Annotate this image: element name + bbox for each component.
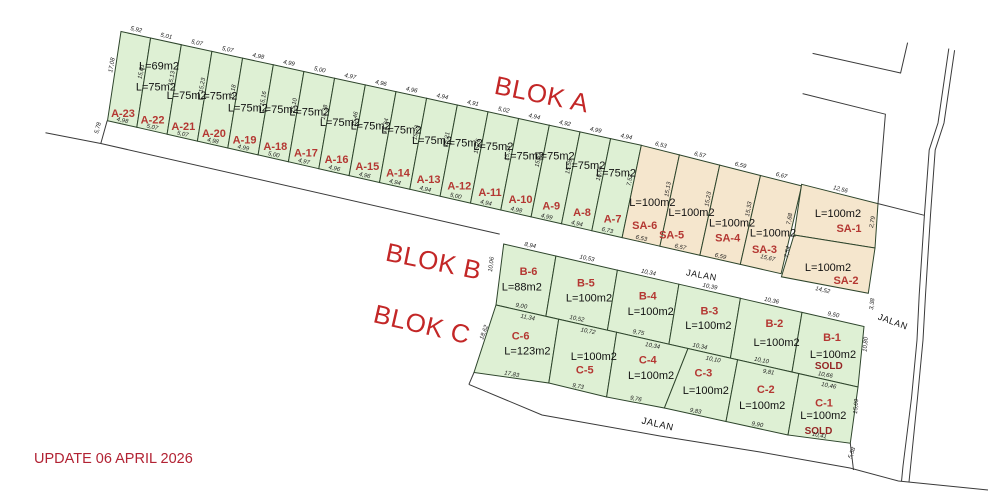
svg-text:A-11: A-11 bbox=[478, 187, 501, 199]
svg-text:A-13: A-13 bbox=[417, 174, 441, 186]
svg-text:A-18: A-18 bbox=[263, 141, 287, 153]
svg-text:A-8: A-8 bbox=[573, 207, 591, 219]
svg-text:A-19: A-19 bbox=[233, 134, 257, 146]
svg-text:L=100m2: L=100m2 bbox=[750, 228, 796, 240]
svg-text:L=100m2: L=100m2 bbox=[571, 351, 617, 363]
svg-text:C-2: C-2 bbox=[757, 384, 775, 396]
svg-text:SA-2: SA-2 bbox=[833, 275, 858, 287]
svg-text:L=100m2: L=100m2 bbox=[628, 370, 674, 382]
svg-text:A-10: A-10 bbox=[509, 194, 533, 206]
svg-text:L=100m2: L=100m2 bbox=[815, 208, 861, 220]
svg-text:C-3: C-3 bbox=[695, 367, 713, 379]
svg-text:L=100m2: L=100m2 bbox=[709, 217, 755, 229]
svg-text:A-9: A-9 bbox=[542, 200, 560, 212]
svg-text:B-5: B-5 bbox=[577, 277, 595, 289]
svg-text:SA-1: SA-1 bbox=[836, 223, 861, 235]
svg-text:B-3: B-3 bbox=[701, 306, 719, 318]
svg-text:C-4: C-4 bbox=[639, 355, 658, 367]
svg-text:C-5: C-5 bbox=[576, 365, 594, 377]
svg-text:C-6: C-6 bbox=[512, 330, 530, 342]
svg-text:L=100m2: L=100m2 bbox=[566, 293, 612, 305]
svg-text:B-4: B-4 bbox=[639, 291, 658, 303]
svg-text:A-12: A-12 bbox=[447, 181, 471, 193]
svg-text:A-17: A-17 bbox=[294, 148, 318, 160]
svg-text:SA-5: SA-5 bbox=[659, 229, 684, 241]
svg-text:L=100m2: L=100m2 bbox=[800, 410, 846, 422]
svg-text:SA-4: SA-4 bbox=[715, 233, 741, 245]
svg-text:A-14: A-14 bbox=[386, 167, 411, 179]
svg-text:L=100m2: L=100m2 bbox=[805, 262, 851, 274]
svg-text:A-7: A-7 bbox=[604, 214, 622, 226]
svg-text:L=100m2: L=100m2 bbox=[810, 349, 856, 361]
svg-text:C-1: C-1 bbox=[815, 397, 833, 409]
svg-text:B-2: B-2 bbox=[766, 318, 784, 330]
svg-text:L=100m2: L=100m2 bbox=[685, 320, 731, 332]
svg-text:L=123m2: L=123m2 bbox=[504, 345, 550, 357]
svg-text:L=100m2: L=100m2 bbox=[739, 400, 785, 412]
svg-text:UPDATE 06 APRIL 2026: UPDATE 06 APRIL 2026 bbox=[34, 451, 193, 467]
svg-text:SA-6: SA-6 bbox=[632, 220, 657, 232]
svg-text:B-1: B-1 bbox=[823, 332, 841, 344]
svg-text:L=100m2: L=100m2 bbox=[668, 207, 714, 219]
svg-text:L=100m2: L=100m2 bbox=[683, 385, 729, 397]
svg-text:L=88m2: L=88m2 bbox=[502, 282, 542, 294]
svg-text:L=100m2: L=100m2 bbox=[628, 306, 674, 318]
svg-text:L=100m2: L=100m2 bbox=[754, 337, 800, 349]
svg-text:B-6: B-6 bbox=[520, 266, 538, 278]
